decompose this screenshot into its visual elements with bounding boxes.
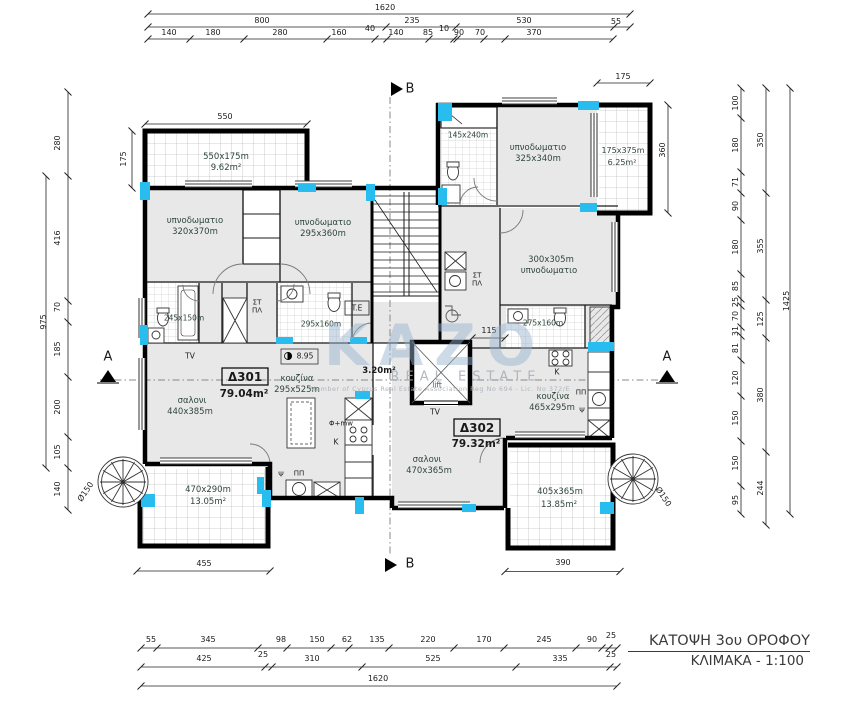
column-marker (438, 103, 452, 121)
column-marker (257, 477, 264, 494)
section-b-arrow (385, 558, 397, 572)
column-marker (140, 182, 150, 200)
shaft-column (590, 307, 610, 346)
drawing-title: ΚΑΤΟΨΗ 3ου ΟΡΟΦΟΥ (628, 633, 810, 652)
drawing-scale: ΚΛΙΜΑΚΑ - 1:100 (628, 652, 810, 669)
column-marker (578, 101, 599, 110)
staircase (372, 192, 440, 296)
column-marker (355, 497, 364, 514)
column-marker (298, 184, 316, 192)
spiral-staircase (98, 457, 148, 507)
column-marker (350, 337, 367, 344)
section-b-arrow (391, 82, 403, 96)
section-a-arrow (659, 370, 675, 382)
column-marker (276, 337, 293, 344)
column-marker (588, 342, 614, 351)
column-marker (355, 391, 370, 399)
column-marker (580, 203, 597, 212)
column-marker (462, 504, 476, 512)
title-block: ΚΑΤΟΨΗ 3ου ΟΡΟΦΟΥ ΚΛΙΜΑΚΑ - 1:100 (628, 633, 810, 669)
floor-plan-page: KAZO REAL ESTATE Member of Cyprus Real E… (0, 0, 849, 717)
floor-plan-drawing (0, 0, 849, 717)
column-marker (600, 502, 614, 514)
column-marker (140, 325, 148, 345)
column-marker (438, 188, 447, 205)
elevator (412, 342, 470, 406)
spiral-staircase (608, 454, 658, 504)
column-marker (366, 184, 375, 201)
section-a-arrow (100, 370, 116, 382)
stair-treads (373, 196, 439, 292)
vanity (148, 328, 164, 343)
